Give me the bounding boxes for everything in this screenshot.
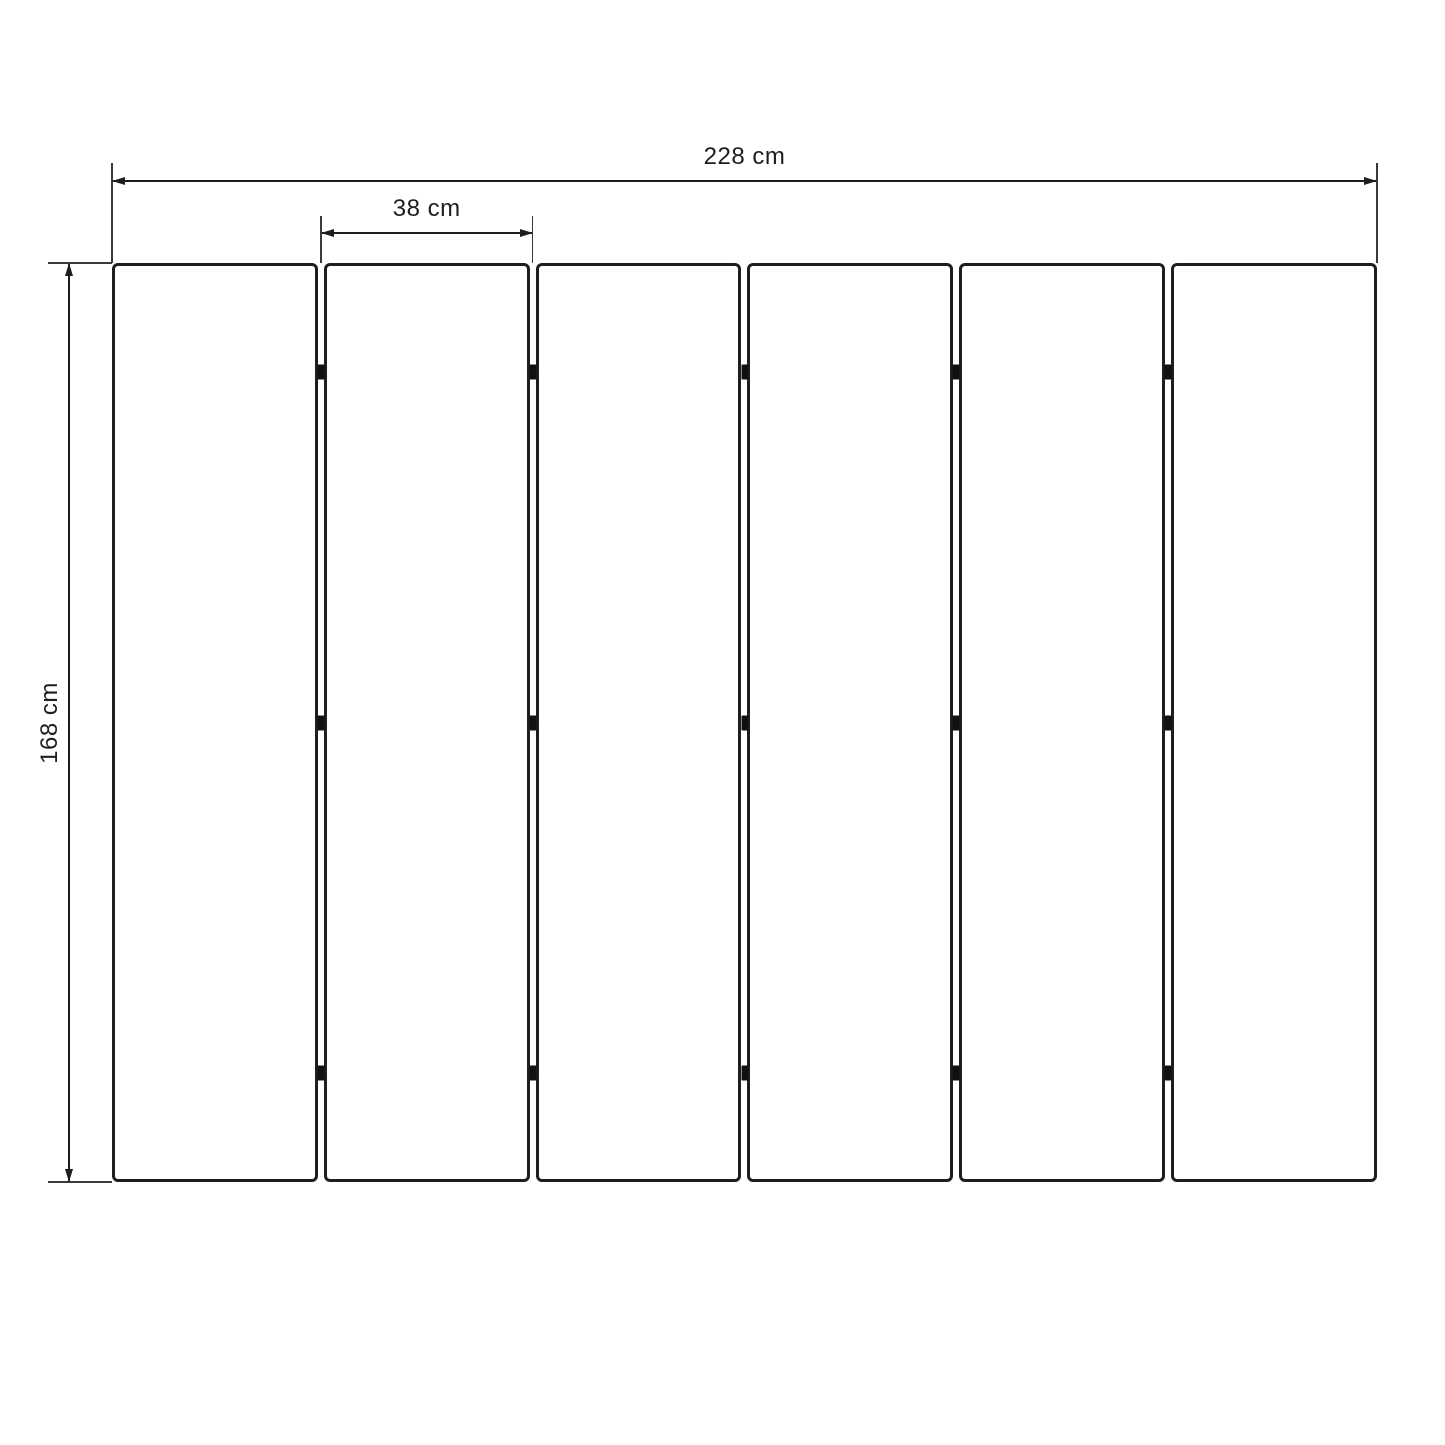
extension-line	[320, 216, 322, 263]
arrowhead-left-icon	[321, 229, 334, 237]
diagram-canvas: 228 cm 38 cm 168 cm	[0, 0, 1445, 1445]
extension-line	[48, 1181, 112, 1183]
dimension-line	[68, 264, 71, 1181]
extension-line	[532, 216, 534, 263]
panel	[1171, 263, 1377, 1182]
panel	[536, 263, 742, 1182]
panel-row	[112, 263, 1377, 1182]
extension-line	[48, 262, 112, 264]
dimension-line	[113, 180, 1376, 183]
arrowhead-left-icon	[112, 177, 125, 185]
arrowhead-right-icon	[520, 229, 533, 237]
arrowhead-up-icon	[65, 263, 73, 276]
panel	[324, 263, 530, 1182]
panel	[959, 263, 1165, 1182]
dimension-line	[322, 232, 532, 235]
arrowhead-right-icon	[1364, 177, 1377, 185]
panel-width-label: 38 cm	[393, 195, 461, 223]
height-label: 168 cm	[36, 682, 64, 764]
panel	[747, 263, 953, 1182]
total-width-label: 228 cm	[704, 143, 786, 171]
panel	[112, 263, 318, 1182]
arrowhead-down-icon	[65, 1169, 73, 1182]
